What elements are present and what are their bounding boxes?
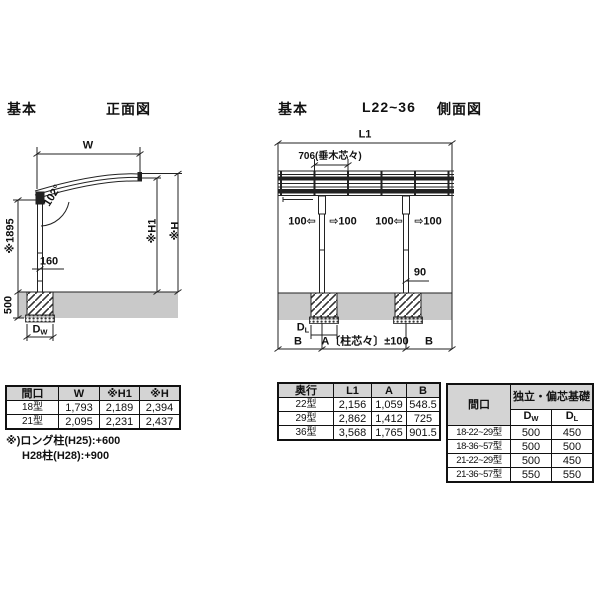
foundation-cell: 550 bbox=[552, 468, 593, 482]
table-row: 21型 2,095 2,231 2,437 bbox=[7, 415, 180, 429]
front-view-drawing bbox=[13, 147, 182, 341]
side-offset-left-2: 100⇦ bbox=[375, 217, 403, 228]
spec-cell: 2,189 bbox=[100, 401, 140, 415]
table-row: 21-36~57型 550 550 bbox=[448, 468, 593, 482]
spec-col-header: W bbox=[59, 387, 100, 401]
front-h-label: ※H bbox=[171, 222, 182, 241]
depth-table: 奥行 L1 A B 22型 2,156 1,059 548.5 29型 2,86… bbox=[278, 383, 440, 440]
depth-col-header: A bbox=[372, 384, 407, 398]
foundation-sub-header: DL bbox=[552, 410, 593, 426]
side-a-span-label: A〔柱芯々〕±100 bbox=[321, 337, 408, 348]
side-offset-left-1: 100⇦ bbox=[288, 217, 316, 228]
front-post-height-label: ※1895 bbox=[6, 218, 17, 253]
foundation-cell: 21-36~57型 bbox=[448, 468, 511, 482]
arrow-right-icon: ⇨ bbox=[414, 216, 423, 228]
foundation-sub-header: DW bbox=[511, 410, 552, 426]
depth-cell: 1,059 bbox=[372, 398, 407, 412]
spec-cell: 2,394 bbox=[140, 401, 180, 415]
spec-cell: 18型 bbox=[7, 401, 59, 415]
foundation-cell: 21-22~29型 bbox=[448, 454, 511, 468]
arrow-left-icon: ⇦ bbox=[307, 216, 316, 228]
side-90-label: 90 bbox=[414, 268, 426, 279]
depth-cell: 2,862 bbox=[334, 412, 372, 426]
front-dim-w bbox=[34, 147, 144, 189]
front-offset-label: 160 bbox=[40, 257, 58, 268]
table-row: 29型 2,862 1,412 725 bbox=[279, 412, 440, 426]
table-row: 18-36~57型 500 500 bbox=[448, 440, 593, 454]
depth-col-header: 奥行 bbox=[279, 384, 334, 398]
depth-cell: 548.5 bbox=[407, 398, 440, 412]
arrow-left-icon: ⇦ bbox=[394, 216, 403, 228]
depth-cell: 1,765 bbox=[372, 426, 407, 440]
note-line: ※)ロング柱(H25):+600 bbox=[6, 434, 120, 449]
spec-col-header: ※H bbox=[140, 387, 180, 401]
diagram-linework bbox=[0, 0, 600, 600]
front-angle-arc bbox=[41, 202, 69, 226]
side-b-right-label: B bbox=[425, 337, 433, 348]
arrow-right-icon: ⇨ bbox=[329, 216, 338, 228]
side-footing-length-label: DL bbox=[297, 322, 310, 334]
note-line: H28柱(H28):+900 bbox=[6, 449, 120, 464]
side-rafter-pitch-label: 706(垂木芯々) bbox=[298, 152, 361, 162]
depth-col-header: B bbox=[407, 384, 440, 398]
depth-cell: 3,568 bbox=[334, 426, 372, 440]
foundation-group-header: 独立・偏芯基礎 bbox=[511, 385, 593, 410]
foundation-cell: 500 bbox=[552, 440, 593, 454]
depth-cell: 901.5 bbox=[407, 426, 440, 440]
spec-cell: 2,095 bbox=[59, 415, 100, 429]
spec-cell: 21型 bbox=[7, 415, 59, 429]
foundation-cell: 18-36~57型 bbox=[448, 440, 511, 454]
side-offset-right-1: ⇨100 bbox=[329, 217, 357, 228]
side-ground bbox=[278, 293, 452, 320]
depth-cell: 725 bbox=[407, 412, 440, 426]
spec-cell: 2,437 bbox=[140, 415, 180, 429]
foundation-cell: 450 bbox=[552, 454, 593, 468]
table-row: 22型 2,156 1,059 548.5 bbox=[279, 398, 440, 412]
depth-cell: 2,156 bbox=[334, 398, 372, 412]
spec-cell: 1,793 bbox=[59, 401, 100, 415]
depth-cell: 29型 bbox=[279, 412, 334, 426]
side-l1-label: L1 bbox=[359, 130, 372, 141]
spec-notes: ※)ロング柱(H25):+600 H28柱(H28):+900 bbox=[6, 434, 120, 464]
side-roof bbox=[278, 171, 454, 202]
drawing-sheet: 基本 正面図 基本 L22~36 側面図 bbox=[0, 0, 600, 600]
foundation-cell: 500 bbox=[511, 426, 552, 440]
front-width-label: W bbox=[83, 141, 93, 152]
foundation-table: 間口 独立・偏芯基礎 DW DL 18-22~29型 500 450 18-36… bbox=[447, 384, 593, 482]
side-dim-l1 bbox=[275, 141, 456, 146]
side-offset-right-2: ⇨100 bbox=[414, 217, 442, 228]
side-dim-90 bbox=[403, 279, 430, 284]
depth-cell: 1,412 bbox=[372, 412, 407, 426]
table-row: 18-22~29型 500 450 bbox=[448, 426, 593, 440]
table-row: 21-22~29型 500 450 bbox=[448, 454, 593, 468]
spec-table: 間口 W ※H1 ※H 18型 1,793 2,189 2,394 21型 2,… bbox=[6, 386, 180, 429]
foundation-cell: 500 bbox=[511, 440, 552, 454]
depth-cell: 36型 bbox=[279, 426, 334, 440]
spec-cell: 2,231 bbox=[100, 415, 140, 429]
depth-cell: 22型 bbox=[279, 398, 334, 412]
foundation-cell: 450 bbox=[552, 426, 593, 440]
depth-col-header: L1 bbox=[334, 384, 372, 398]
foundation-cell: 18-22~29型 bbox=[448, 426, 511, 440]
front-footing-width-label: DW bbox=[32, 324, 47, 336]
table-row: 36型 3,568 1,765 901.5 bbox=[279, 426, 440, 440]
foundation-cell: 500 bbox=[511, 454, 552, 468]
front-h1-label: ※H1 bbox=[148, 219, 159, 244]
side-view-drawing bbox=[275, 141, 456, 352]
spec-col-header: 間口 bbox=[7, 387, 59, 401]
foundation-cell: 550 bbox=[511, 468, 552, 482]
side-b-left-label: B bbox=[294, 337, 302, 348]
front-footing bbox=[26, 292, 55, 322]
front-embed-depth-label: 500 bbox=[4, 296, 15, 314]
table-row: 18型 1,793 2,189 2,394 bbox=[7, 401, 180, 415]
spec-col-header: ※H1 bbox=[100, 387, 140, 401]
foundation-col-header: 間口 bbox=[448, 385, 511, 426]
